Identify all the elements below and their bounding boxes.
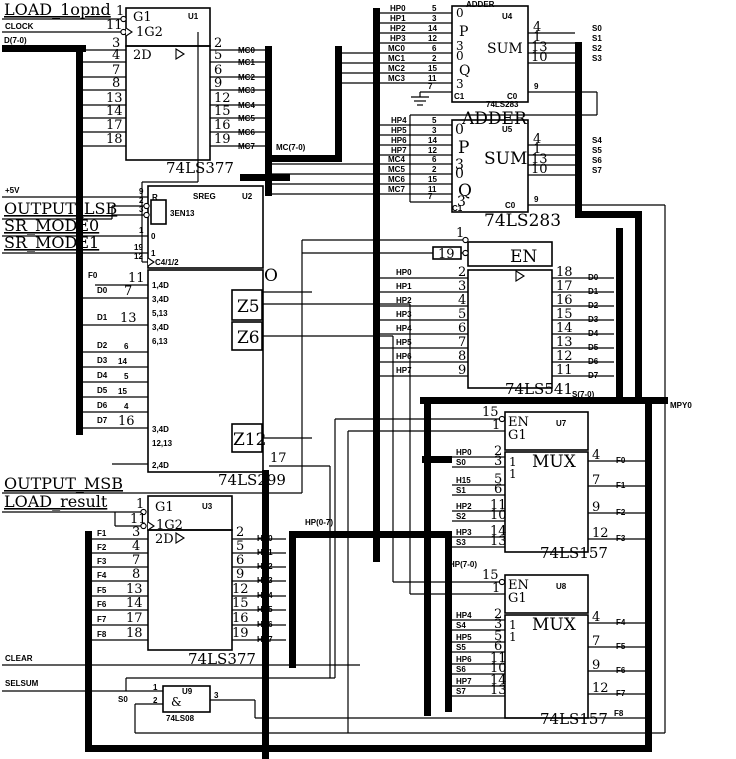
pin-number: 1: [492, 418, 500, 433]
signal-label: 1,4D: [152, 281, 169, 290]
pin-number: 2: [432, 54, 437, 63]
signal-label: S0: [456, 458, 466, 467]
pin-number: 5: [432, 116, 437, 125]
pin-number: 12: [232, 582, 249, 597]
signal-label: HP1: [257, 548, 273, 557]
pin-number: 4: [112, 48, 120, 63]
signal-label: HP3: [257, 576, 273, 585]
signal-label: D7: [97, 416, 108, 425]
pin-number: 4: [132, 539, 140, 554]
u1-part-label: 74LS377: [166, 159, 234, 177]
pin-number: 6: [494, 482, 502, 497]
signal-label: MC4: [388, 155, 405, 164]
bus-segment: [85, 531, 92, 752]
signal-label: G1: [508, 591, 527, 606]
u4-refdes: U4: [502, 12, 513, 21]
pin-number: 1: [153, 683, 158, 692]
signal-label: S0: [592, 24, 602, 33]
bus-segment: [575, 42, 582, 218]
pin-number: 15: [214, 104, 231, 119]
signal-label: O: [264, 266, 278, 286]
pin-number: 6: [432, 155, 437, 164]
signal-label: F8: [97, 630, 107, 639]
pin-number: 0: [151, 232, 156, 241]
signal-label: F6: [97, 600, 107, 609]
signal-label: C1: [454, 92, 465, 101]
signal-label: F1: [616, 481, 626, 490]
pin-number: 9: [534, 195, 539, 204]
u5-refdes: U5: [502, 125, 513, 134]
pin-number: 4: [458, 293, 466, 308]
pin-number: 1: [509, 630, 517, 644]
signal-label: D4: [97, 371, 108, 380]
pin-number: 1: [116, 4, 124, 19]
signal-label: P: [458, 138, 469, 158]
bus-segment: [422, 456, 452, 463]
pin-number: 4: [592, 610, 600, 625]
signal-label: MC3: [388, 74, 405, 83]
net-hp70-bus: HP(7-0): [449, 560, 477, 569]
u7-part-label: 74LS157: [540, 544, 608, 562]
signal-label: MC5: [238, 114, 255, 123]
signal-label: S5: [592, 146, 602, 155]
signal-label: P: [459, 24, 468, 40]
pin-number: 9: [236, 567, 244, 582]
pin-number: 7: [592, 473, 600, 488]
signal-label: 3EN13: [170, 209, 195, 218]
pin-number: 1: [151, 249, 156, 258]
signal-label: F2: [616, 508, 626, 517]
pin-number: 5: [458, 307, 466, 322]
signal-label: D6: [588, 357, 599, 366]
pin-number: 2: [236, 525, 244, 540]
signal-label: S1: [456, 486, 466, 495]
signal-label: HP3: [396, 310, 412, 319]
signal-label: HP4: [391, 116, 407, 125]
pin-number: 3: [458, 279, 466, 294]
signal-label: 12,13: [152, 439, 173, 448]
signal-label: 3,4D: [152, 425, 169, 434]
pin-number: 19: [134, 243, 143, 252]
signal-label: HP5: [396, 338, 412, 347]
pin-number: 16: [232, 611, 249, 626]
pin-number: 9: [139, 187, 144, 196]
signal-label: HP0: [257, 534, 273, 543]
signal-label: D1: [97, 313, 108, 322]
signal-label: S3: [456, 538, 466, 547]
signal-label: 2D: [133, 48, 152, 63]
pin-number: 3: [432, 126, 437, 135]
pin-number: 1: [492, 581, 500, 596]
bus-segment: [373, 8, 380, 562]
signal-label: D0: [97, 286, 108, 295]
u4-part-label: 74LS283: [486, 100, 519, 109]
pin-number: 8: [458, 349, 466, 364]
signal-label: HP5: [391, 126, 407, 135]
pin-number: 9: [214, 76, 222, 91]
signal-label: HP6: [456, 655, 472, 664]
pin-number: 0: [455, 166, 464, 182]
pin-number: 7: [428, 192, 433, 201]
signal-label: D3: [97, 356, 108, 365]
signal-label: EN: [510, 247, 537, 267]
signal-label: G1: [155, 500, 174, 515]
signal-label: MC4: [238, 101, 255, 110]
signal-label: C0: [505, 201, 516, 210]
signal-label: HP0: [396, 268, 412, 277]
pin-number: 6: [432, 44, 437, 53]
signal-label: MC7: [238, 142, 255, 151]
pin-number: 17: [126, 611, 143, 626]
pin-number: 10: [531, 162, 548, 177]
pin-number: 6: [458, 321, 466, 336]
signal-label: HP5: [456, 633, 472, 642]
pin-number: 18: [556, 265, 573, 280]
signal-label: MC7: [388, 185, 405, 194]
signal-label: HP6: [391, 136, 407, 145]
pin-number: 14: [118, 357, 127, 366]
signal-label: HP1: [396, 282, 412, 291]
signal-label: F3: [616, 534, 626, 543]
pin-number: 3: [432, 14, 437, 23]
pin-number: 2: [153, 696, 158, 705]
signal-label: 6,13: [152, 337, 168, 346]
pin-number: 6: [236, 553, 244, 568]
pin-number: 12: [592, 681, 609, 696]
pin-number: 3: [214, 691, 219, 700]
signal-label: F6: [616, 666, 626, 675]
signal-label: D6: [97, 401, 108, 410]
pin-number: 18: [106, 132, 123, 147]
pin-number: 5: [432, 4, 437, 13]
signal-label: HP0: [390, 4, 406, 13]
bus-segment: [616, 228, 623, 404]
u5-part-label: 74LS283: [484, 211, 561, 231]
pin-number: 14: [106, 104, 123, 119]
signal-label: F5: [616, 642, 626, 651]
signal-label: D1: [588, 287, 599, 296]
signal-label: F7: [616, 689, 626, 698]
pin-number: 19: [232, 626, 249, 641]
u2-refdes: U2: [242, 192, 253, 201]
pin-number: 7: [124, 284, 132, 299]
schematic-canvas: LOAD_1opndCLOCKD(7-0)+5VOUTPUT_LSBSR_MOD…: [0, 0, 736, 759]
signal-label: Z5: [237, 297, 260, 317]
pin-number: 3: [132, 525, 140, 540]
pin-number: 15: [556, 307, 573, 322]
signal-label: HP7: [391, 146, 407, 155]
pin-number: 7: [592, 634, 600, 649]
signal-label: S6: [592, 156, 602, 165]
signal-label: MC6: [238, 128, 255, 137]
signal-label: R: [152, 193, 158, 202]
net-mc-bus: MC(7-0): [276, 143, 306, 152]
signal-label: HP2: [390, 24, 406, 33]
net-load-result: LOAD_result: [4, 492, 108, 511]
signal-label: S6: [456, 665, 466, 674]
inverter-bubble: [144, 203, 149, 208]
net-load-1opnd: LOAD_1opnd: [4, 0, 111, 19]
signal-label: 1G2: [136, 25, 163, 40]
signal-label: F4: [616, 618, 626, 627]
signal-label: D2: [97, 341, 108, 350]
signal-label: MC0: [388, 44, 405, 53]
pin-number: 17: [556, 279, 573, 294]
signal-label: HP4: [456, 611, 472, 620]
pin-number: 4: [124, 402, 129, 411]
u5-title: ADDER: [461, 109, 528, 129]
bus-segment: [424, 398, 431, 716]
pin-number: 12: [134, 252, 143, 261]
signal-label: HP7: [396, 366, 412, 375]
signal-label: S4: [592, 136, 602, 145]
signal-label: MC6: [388, 175, 405, 184]
signal-label: F7: [97, 615, 107, 624]
signal-label: MC1: [388, 54, 405, 63]
pin-number: 16: [556, 293, 573, 308]
pin-number: 9: [458, 363, 466, 378]
pin-number: 7: [132, 553, 140, 568]
net-hp07-bus: HP(0-7): [305, 518, 333, 527]
pin-number: 12: [556, 349, 573, 364]
signal-label: HP2: [396, 296, 412, 305]
pin-number: 2: [139, 196, 144, 205]
signal-label: &: [171, 695, 182, 709]
signal-label: SUM: [484, 149, 527, 169]
signal-label: D7: [588, 371, 599, 380]
signal-label: D3: [588, 315, 599, 324]
pin-number: 15: [428, 64, 437, 73]
signal-label: HP4: [396, 324, 412, 333]
net-sr-mode1: SR_MODE1: [4, 233, 99, 252]
bus-segment: [420, 397, 668, 404]
u9-refdes: U9: [182, 687, 193, 696]
signal-label: 3,4D: [152, 295, 169, 304]
pin-number: 14: [126, 596, 143, 611]
pin-number: 5: [214, 48, 222, 63]
pin-number: 4: [592, 448, 600, 463]
u2-function-label: SREG: [193, 192, 216, 201]
pin-number: 14: [428, 136, 437, 145]
pin-number: 0: [456, 49, 464, 63]
signal-label: D5: [97, 386, 108, 395]
pin-number: 16: [214, 118, 231, 133]
signal-label: MC5: [388, 165, 405, 174]
signal-label: F0: [616, 456, 626, 465]
pin-number: 19: [438, 247, 455, 262]
pin-number: 9: [534, 82, 539, 91]
pin-number: 8: [132, 567, 140, 582]
signal-label: F3: [97, 557, 107, 566]
u8-refdes: U8: [556, 582, 567, 591]
signal-label: HP6: [257, 620, 273, 629]
signal-label: S5: [456, 643, 466, 652]
net-s-bus: S(7-0): [572, 390, 595, 399]
pin-number: 10: [531, 50, 548, 65]
pin-number: 13: [126, 582, 143, 597]
pin-number: 3: [456, 77, 464, 91]
pin-number: 9: [592, 658, 600, 673]
signal-label: MC2: [238, 73, 255, 82]
signal-label: H15: [456, 476, 471, 485]
signal-label: MUX: [532, 452, 577, 472]
signal-label: S3: [592, 54, 602, 63]
signal-label: 2,4D: [152, 461, 169, 470]
signal-label: Z6: [237, 328, 260, 348]
pin-number: 14: [556, 321, 573, 336]
u8-part-label: 74LS157: [540, 710, 608, 728]
signal-label: HP0: [456, 448, 472, 457]
signal-label: MC1: [238, 58, 255, 67]
pin-number: 12: [592, 526, 609, 541]
signal-label: 5,13: [152, 309, 168, 318]
bus-segment: [262, 470, 269, 759]
net-s0: S0: [118, 695, 128, 704]
signal-label: HP2: [257, 562, 273, 571]
pin-number: 17: [106, 118, 123, 133]
u6-part-label: 74LS541: [505, 380, 573, 398]
u1-refdes: U1: [188, 12, 199, 21]
net-clock: CLOCK: [5, 22, 34, 31]
pin-number: 17: [270, 451, 287, 466]
signal-label: S4: [456, 621, 466, 630]
u2-part-label: 74LS299: [218, 471, 286, 489]
pin-number: 13: [490, 683, 507, 698]
inverter-bubble: [144, 212, 149, 217]
pin-number: 3: [139, 205, 144, 214]
u3-refdes: U3: [202, 502, 213, 511]
pin-number: 5: [236, 539, 244, 554]
pin-number: 18: [126, 626, 143, 641]
bus-segment: [265, 46, 272, 196]
inverter-bubble: [463, 250, 468, 255]
u7-refdes: U7: [556, 419, 567, 428]
signal-label: SUM: [487, 41, 523, 57]
signal-label: D4: [588, 329, 599, 338]
signal-label: MC3: [238, 86, 255, 95]
signal-label: F1: [97, 529, 107, 538]
bus-segment: [2, 45, 86, 52]
u4-title: ADDER: [466, 0, 495, 9]
pin-number: 15: [118, 387, 127, 396]
u9-part-label: 74LS08: [166, 714, 195, 723]
signal-label: G1: [508, 428, 527, 443]
net-clear: CLEAR: [5, 654, 33, 663]
signal-label: C4/1/2: [155, 258, 179, 267]
pin-number: 14: [428, 24, 437, 33]
signal-label: F2: [97, 543, 107, 552]
bus-segment: [85, 745, 652, 752]
u3-part-label: 74LS377: [188, 650, 256, 668]
signal-label: HP2: [456, 502, 472, 511]
pin-number: 1: [136, 497, 144, 512]
pin-number: 10: [490, 508, 507, 523]
pin-number: 12: [428, 34, 437, 43]
pin-number: 2: [432, 165, 437, 174]
pin-number: 9: [592, 500, 600, 515]
pin-number: 13: [490, 534, 507, 549]
pin-number: 7: [458, 335, 466, 350]
signal-label: 3,4D: [152, 323, 169, 332]
bus-segment: [289, 531, 296, 668]
pin-number: 16: [118, 414, 135, 429]
pin-number: 11: [556, 363, 573, 378]
signal-label: HP3: [390, 34, 406, 43]
signal-label: S7: [456, 687, 466, 696]
net-selsum: SELSUM: [5, 679, 39, 688]
pin-number: 1: [456, 226, 464, 241]
pin-number: 19: [214, 132, 231, 147]
signal-label: D0: [588, 273, 599, 282]
net-5v: +5V: [5, 186, 20, 195]
multiplier-schematic: LOAD_1opndCLOCKD(7-0)+5VOUTPUT_LSBSR_MOD…: [0, 0, 736, 759]
signal-label: HP6: [396, 352, 412, 361]
signal-label: 2D: [155, 532, 174, 547]
pin-number: 0: [456, 6, 464, 20]
pin-number: 1: [139, 226, 144, 235]
signal-label: G1: [133, 10, 152, 25]
pin-number: 6: [124, 342, 129, 351]
signal-label: C1: [452, 204, 463, 213]
signal-label: 1G2: [156, 518, 183, 533]
net-mpy0: MPY0: [670, 401, 692, 410]
bus-segment: [240, 174, 290, 181]
pin-number: 15: [428, 175, 437, 184]
pin-number: 0: [455, 122, 464, 138]
signal-label: MC2: [388, 64, 405, 73]
pin-number: 12: [428, 146, 437, 155]
signal-label: F4: [97, 571, 107, 580]
pin-number: 11: [106, 18, 123, 33]
signal-label: S7: [592, 166, 602, 175]
pin-number: 13: [556, 335, 573, 350]
pin-number: 5: [124, 372, 129, 381]
signal-label: HP7: [257, 635, 273, 644]
net-f8: F8: [614, 709, 624, 718]
signal-label: S1: [592, 34, 602, 43]
pin-number: 1: [509, 467, 517, 481]
net-output-msb: OUTPUT_MSB: [4, 474, 123, 493]
pin-number: 8: [112, 76, 120, 91]
pin-number: 13: [120, 311, 137, 326]
signal-label: HP7: [456, 677, 472, 686]
signal-label: S2: [456, 512, 466, 521]
bus-segment: [265, 155, 342, 162]
signal-label: S2: [592, 44, 602, 53]
signal-label: F0: [88, 271, 98, 280]
bus-segment: [575, 211, 642, 218]
signal-label: HP4: [257, 591, 273, 600]
pin-number: 15: [232, 596, 249, 611]
net-d-bus: D(7-0): [4, 36, 27, 45]
pin-number: 2: [458, 265, 466, 280]
signal-label: Z12: [233, 430, 266, 450]
signal-label: HP5: [257, 605, 273, 614]
signal-label: F5: [97, 586, 107, 595]
signal-label: D2: [588, 301, 599, 310]
bus-segment: [335, 46, 342, 162]
pin-number: 3: [494, 454, 502, 469]
signal-label: MUX: [532, 615, 577, 635]
bus-segment: [635, 211, 642, 404]
signal-label: HP3: [456, 528, 472, 537]
signal-label: D5: [588, 343, 599, 352]
signal-label: MC0: [238, 46, 255, 55]
pin-number: 7: [428, 82, 433, 91]
bus-segment: [645, 397, 652, 752]
signal-label: HP1: [390, 14, 406, 23]
